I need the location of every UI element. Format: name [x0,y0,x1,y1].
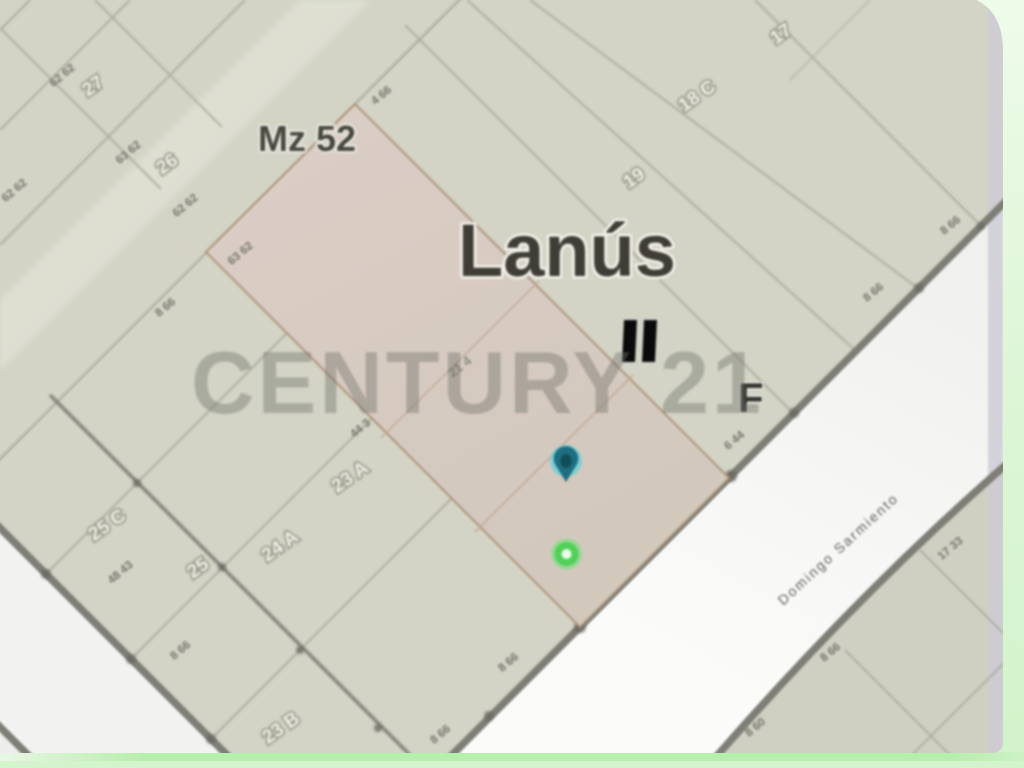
svg-text:CENTURY 21: CENTURY 21 [191,333,764,432]
svg-text:Mz 52: Mz 52 [258,118,356,159]
svg-text:Lanús: Lanús [458,209,676,292]
